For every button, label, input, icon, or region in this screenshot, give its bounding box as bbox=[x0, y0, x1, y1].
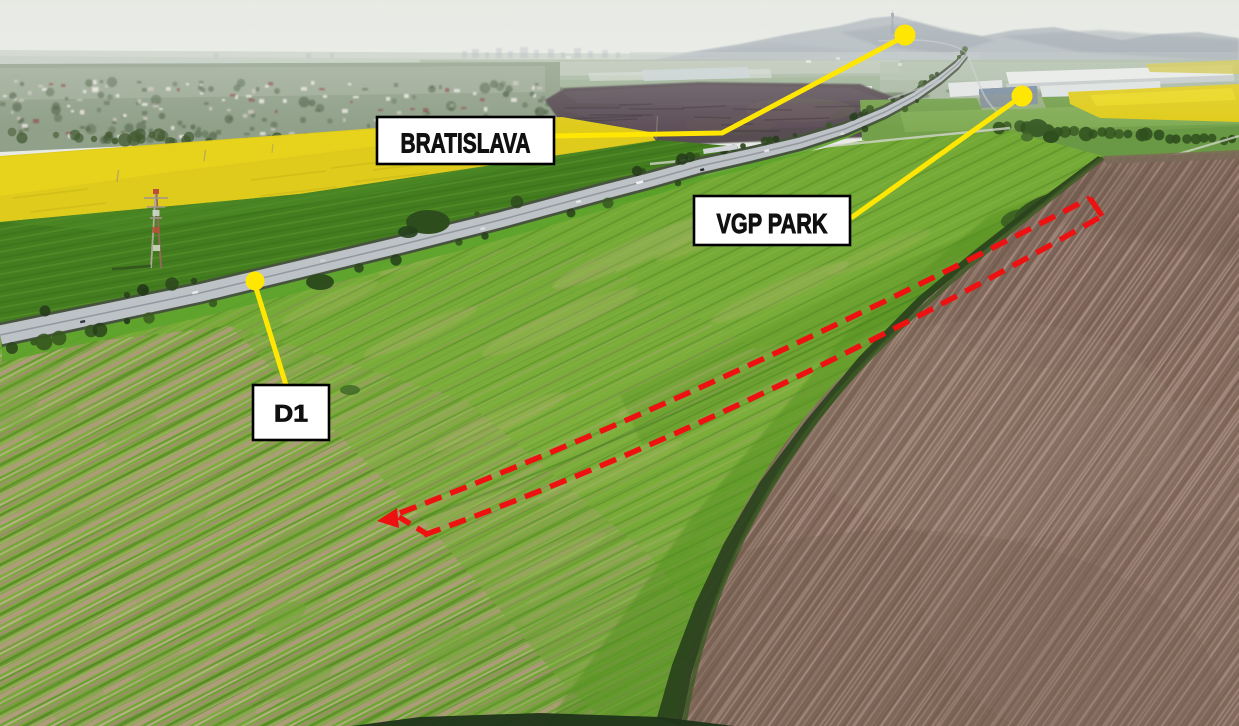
svg-text:BRATISLAVA: BRATISLAVA bbox=[401, 128, 531, 159]
svg-text:D1: D1 bbox=[274, 401, 308, 428]
svg-text:VGP PARK: VGP PARK bbox=[717, 208, 828, 239]
